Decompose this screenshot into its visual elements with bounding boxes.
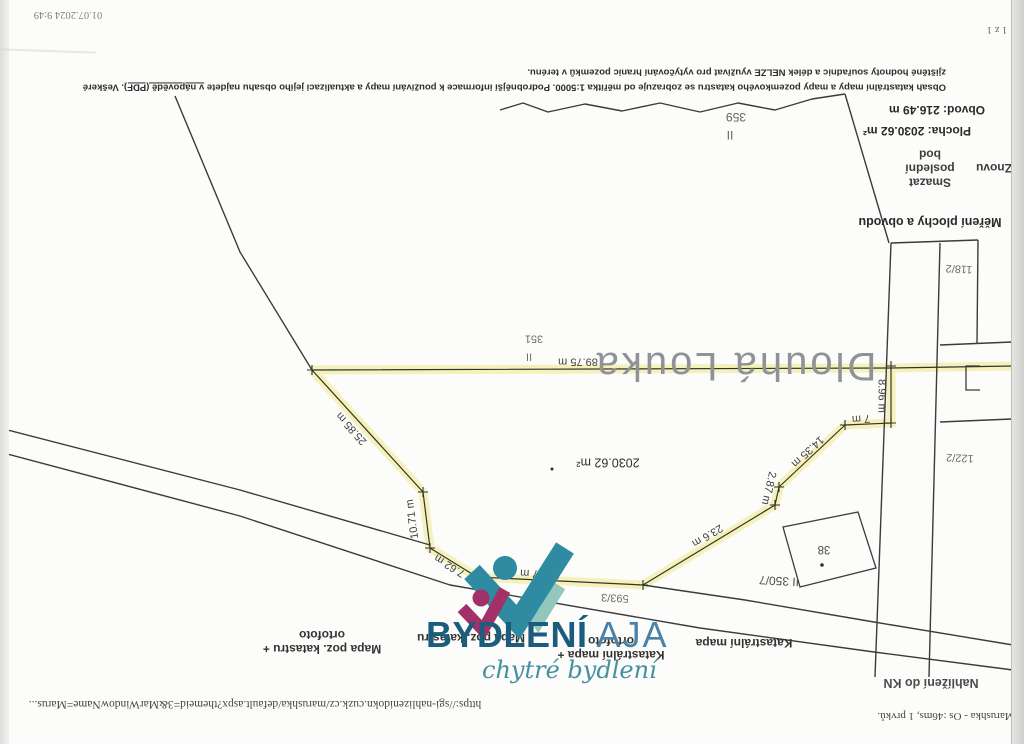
parcel-118-2: 118/2 bbox=[945, 262, 972, 274]
building-38: 38 bbox=[818, 542, 831, 554]
area-label-2030-62: 2030.62 m² bbox=[576, 456, 639, 469]
place-name-dlouha-louka: Dlouhá Louka bbox=[594, 346, 877, 386]
dist-7: 7 m bbox=[852, 412, 871, 424]
disclaimer-part1: Obsah katastrální mapy a mapy pozemkovéh… bbox=[204, 81, 946, 92]
brand-tagline: chytré bydlení bbox=[482, 656, 657, 684]
print-date-stamp: 01.07.2024 9:49 bbox=[26, 9, 110, 20]
brand-wordmark: BYDLENÍAJA bbox=[426, 614, 669, 656]
area-value: Plocha: 2030.62 m² bbox=[862, 124, 972, 138]
measure-panel-title: Měření plochy a obvodu bbox=[845, 215, 1015, 229]
brand-aja: AJA bbox=[597, 614, 669, 655]
brand-bydleni: BYDLENÍ bbox=[426, 614, 588, 655]
landuse-ii-351: II bbox=[526, 351, 532, 362]
scan-edge-left bbox=[0, 0, 9, 744]
print-url: https://sgi-nahlizenidokn.cuzk.cz/marush… bbox=[6, 698, 504, 710]
dist-8-96: 8.96 m bbox=[876, 379, 887, 413]
perimeter-value: Obvod: 216.49 m bbox=[888, 103, 986, 117]
parcel-122-2: 122/2 bbox=[946, 451, 974, 463]
parcel-359: 359 bbox=[726, 111, 746, 123]
disclaimer-text: Obsah katastrální mapy a mapy pozemkovéh… bbox=[78, 64, 946, 93]
dist-89-75: 89.75 m bbox=[558, 356, 598, 367]
delete-last-point-button[interactable]: Smazat poslední bod bbox=[900, 147, 960, 188]
tab-mapa-poz-katastru-ortofoto[interactable]: Mapa poz. katastru + ortofoto bbox=[241, 628, 403, 656]
marushka-status-text: Marushka - Os :46ms, 1 prvků. bbox=[868, 710, 1024, 722]
app-title-nahlizeni-do-kn: Nahlížení do KN bbox=[866, 676, 996, 690]
scanned-cadastral-printout: Dlouhá Louka89.75 m351II359II2030.62 m²2… bbox=[0, 0, 1024, 744]
bydleni-aja-watermark: BYDLENÍAJA chytré bydlení bbox=[420, 540, 750, 695]
napoveda-pdf-link[interactable]: v nápovědě (PDF) bbox=[124, 81, 204, 92]
parcel-351: 351 bbox=[525, 333, 543, 344]
scan-edge-right bbox=[1011, 0, 1024, 744]
parcel-ii-350-7: II 350/7 bbox=[759, 574, 800, 588]
landuse-ii-359: II bbox=[727, 129, 734, 141]
